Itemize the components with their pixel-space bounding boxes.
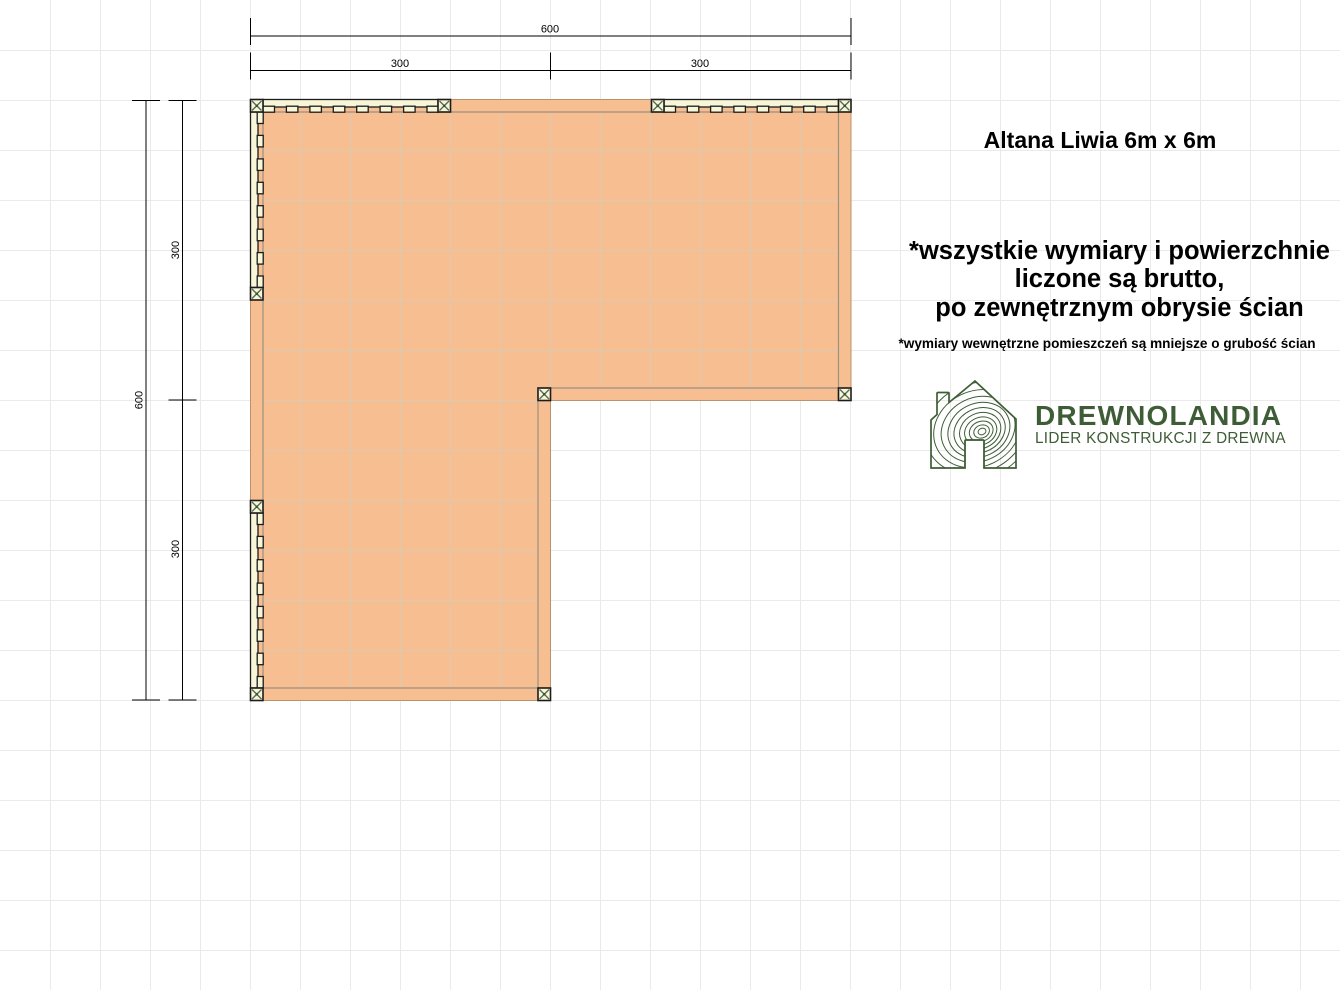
svg-text:300: 300 [170,540,182,558]
svg-text:300: 300 [691,58,709,70]
svg-text:300: 300 [170,241,182,259]
svg-text:600: 600 [134,391,146,409]
svg-text:300: 300 [391,58,409,70]
svg-text:600: 600 [541,24,559,36]
